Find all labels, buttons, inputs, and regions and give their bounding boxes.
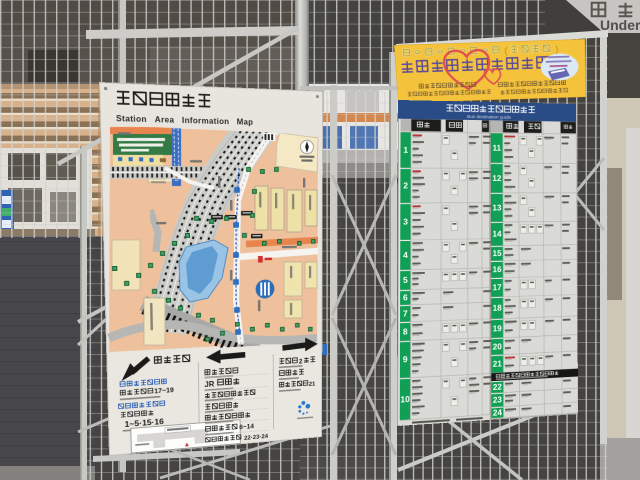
svg-text:22: 22 — [493, 382, 502, 392]
svg-text:17~19: 17~19 — [154, 386, 174, 395]
svg-text:8: 8 — [403, 327, 408, 337]
svg-text:15: 15 — [493, 249, 502, 258]
svg-text:24: 24 — [493, 408, 502, 418]
svg-text:14: 14 — [493, 230, 502, 239]
svg-text:JR: JR — [204, 380, 215, 389]
svg-text:10: 10 — [400, 394, 410, 404]
svg-text:21: 21 — [309, 381, 316, 388]
svg-text:2: 2 — [299, 357, 303, 365]
svg-text:5: 5 — [403, 275, 408, 284]
svg-text:2: 2 — [403, 181, 408, 190]
svg-text:21: 21 — [493, 359, 502, 369]
svg-text:9: 9 — [403, 355, 408, 365]
svg-text:13: 13 — [492, 203, 501, 212]
svg-text:16: 16 — [493, 265, 502, 274]
svg-text:23: 23 — [493, 395, 502, 405]
svg-text:12: 12 — [492, 174, 501, 183]
svg-text:19: 19 — [493, 324, 502, 333]
svg-text:Bus destination guide: Bus destination guide — [467, 114, 511, 120]
svg-text:20: 20 — [493, 342, 502, 352]
svg-text:11: 11 — [493, 144, 502, 153]
svg-text:7: 7 — [403, 309, 408, 319]
svg-text:4: 4 — [403, 250, 408, 259]
svg-text:1: 1 — [403, 146, 408, 155]
svg-text:18: 18 — [493, 303, 502, 312]
svg-text:17: 17 — [493, 283, 502, 292]
svg-text:6~14: 6~14 — [239, 422, 254, 431]
svg-text:): ) — [555, 44, 558, 55]
svg-text:3: 3 — [403, 217, 408, 226]
svg-text:6: 6 — [403, 293, 408, 302]
